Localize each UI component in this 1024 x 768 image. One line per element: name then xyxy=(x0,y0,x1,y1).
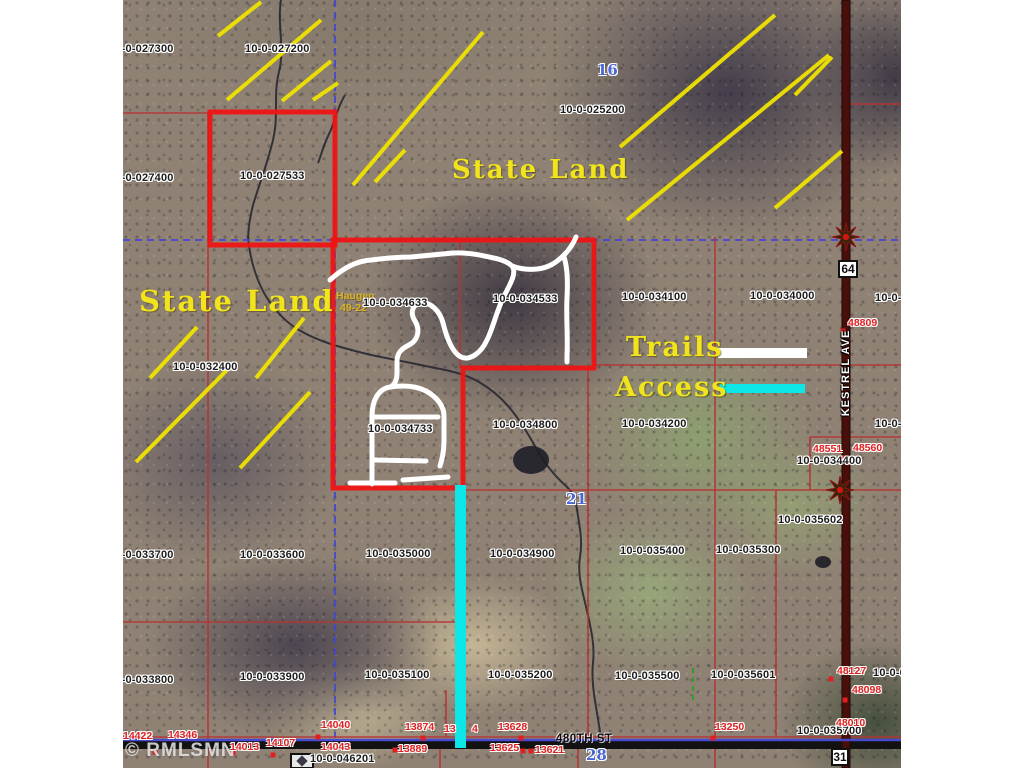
street-480th-label: 480TH ST xyxy=(556,733,612,745)
address-label: 14422 xyxy=(123,731,152,741)
map-canvas[interactable]: Trails Access Haugen 49-22 KESTREL AVE 4… xyxy=(123,0,901,768)
parcel-id-label: 10-0-034533 xyxy=(493,294,558,305)
parcel-id-label: 10-0-027300 xyxy=(123,44,174,55)
shield-diamond xyxy=(296,755,307,766)
compass-center-dot xyxy=(837,487,843,493)
address-dot xyxy=(316,735,321,740)
compass-center-dot xyxy=(843,234,849,240)
address-label: 13 xyxy=(444,724,456,734)
address-label: 48127 xyxy=(837,666,866,676)
parcel-id-label: 10-0-035200 xyxy=(488,670,553,681)
parcel-id-label: 10-0-035601 xyxy=(711,670,776,681)
parcel-id-label: 10-0-034900 xyxy=(490,549,555,560)
address-label: 13250 xyxy=(715,722,744,732)
plat-map-page: Trails Access Haugen 49-22 KESTREL AVE 4… xyxy=(0,0,1024,768)
address-label: 48098 xyxy=(852,685,881,695)
address-label: 13874 xyxy=(405,722,434,732)
watermark: © RMLSMN xyxy=(125,740,236,762)
address-label: 13889 xyxy=(398,744,427,754)
address-dot xyxy=(843,698,848,703)
parcel-id-label: 10-0-034733 xyxy=(368,424,433,435)
state-land-hatch-line xyxy=(218,2,261,36)
parcel-id-label: 10-0-035000 xyxy=(366,549,431,560)
parcel-id-label: 10-0-027533 xyxy=(240,171,305,182)
state-land-hatch-line xyxy=(627,55,829,220)
state-land-hatch-line xyxy=(620,15,775,147)
parcel-id-label: 10-0-035400 xyxy=(620,546,685,557)
address-label: 14043 xyxy=(321,742,350,752)
creek xyxy=(318,95,345,163)
parcel-id-label: 10-0-046201 xyxy=(310,754,375,765)
legend-trails-label: Trails xyxy=(626,334,724,361)
address-label: 48560 xyxy=(853,443,882,453)
address-dot xyxy=(271,753,276,758)
kestrel-ave-label: KESTREL AVE xyxy=(840,327,852,419)
state-land-hatch-line xyxy=(256,318,304,378)
section-number: 21 xyxy=(566,492,587,506)
address-dot xyxy=(521,749,526,754)
address-label: 14040 xyxy=(321,720,350,730)
parcel-id-label: 10-0-034200 xyxy=(622,419,687,430)
trail-path xyxy=(403,477,448,480)
parcel-id-label: 10-0-034000 xyxy=(750,291,815,302)
pond xyxy=(815,556,831,568)
state-land-hatch-line xyxy=(240,392,310,468)
address-dot xyxy=(829,677,834,682)
map-overlay-svg xyxy=(123,0,901,768)
parcel-id-label: 10-0-033700 xyxy=(123,550,174,561)
parcel-id-label: 10-0-0 xyxy=(875,293,901,304)
parcel-id-label: 10-0-0 xyxy=(873,668,901,679)
parcel-id-label: 10-0-034800 xyxy=(493,420,558,431)
parcel-id-label: 10-0-032400 xyxy=(173,362,238,373)
parcel-id-label: 10-0-025200 xyxy=(560,105,625,116)
address-label: 4 xyxy=(472,724,478,734)
address-label: 48809 xyxy=(848,318,877,328)
state-land-hatch-line xyxy=(136,369,228,462)
address-label: 13625 xyxy=(490,743,519,753)
trail-path xyxy=(564,257,567,362)
address-label: 14013 xyxy=(230,742,259,752)
access-legend-swatch xyxy=(720,384,805,393)
address-dot xyxy=(529,749,534,754)
highway-number-box: 64 xyxy=(838,260,858,278)
parcel-id-label: 10-0-0 xyxy=(875,419,901,430)
state-land-label: State Land xyxy=(452,155,629,185)
parcel-id-label: 10-0-035300 xyxy=(716,545,781,556)
parcel-id-label: 10-0-033900 xyxy=(240,672,305,683)
section-number: 28 xyxy=(586,748,607,762)
trails-legend-swatch xyxy=(718,348,807,358)
pond xyxy=(513,446,549,474)
parcel-id-label: 10-0-033600 xyxy=(240,550,305,561)
address-dot xyxy=(421,736,426,741)
section-number: 16 xyxy=(597,63,618,77)
state-land-label: State Land xyxy=(139,284,335,318)
trail-path xyxy=(375,460,426,461)
parcel-id-label: 10-0-027200 xyxy=(245,44,310,55)
parcel-id-label: 10-0-033800 xyxy=(123,675,174,686)
legend-access-label: Access xyxy=(615,374,728,401)
highway-number-box: 31 xyxy=(831,748,849,766)
address-label: 13628 xyxy=(498,722,527,732)
parcel-id-label: 10-0-027400 xyxy=(123,173,174,184)
state-land-hatch-line xyxy=(227,20,321,100)
address-label: 13621 xyxy=(535,745,564,755)
parcel-id-label: 10-0-034100 xyxy=(622,292,687,303)
access-line xyxy=(455,485,466,748)
address-label: 48551 xyxy=(813,444,842,454)
address-label: 48010 xyxy=(836,718,865,728)
address-label: 14346 xyxy=(168,730,197,740)
address-label: 14107 xyxy=(266,738,295,748)
trail-path xyxy=(372,386,444,484)
state-land-hatch-line xyxy=(775,151,842,208)
address-dot xyxy=(711,736,716,741)
address-dot xyxy=(519,736,524,741)
parcel-id-label: 10-0-035100 xyxy=(365,670,430,681)
parcel-id-label: 10-0-035602 xyxy=(778,515,843,526)
parcel-id-label: 10-0-034633 xyxy=(363,298,428,309)
parcel-id-label: 10-0-034400 xyxy=(797,456,862,467)
parcel-id-label: 10-0-035500 xyxy=(615,671,680,682)
address-dot xyxy=(393,748,398,753)
